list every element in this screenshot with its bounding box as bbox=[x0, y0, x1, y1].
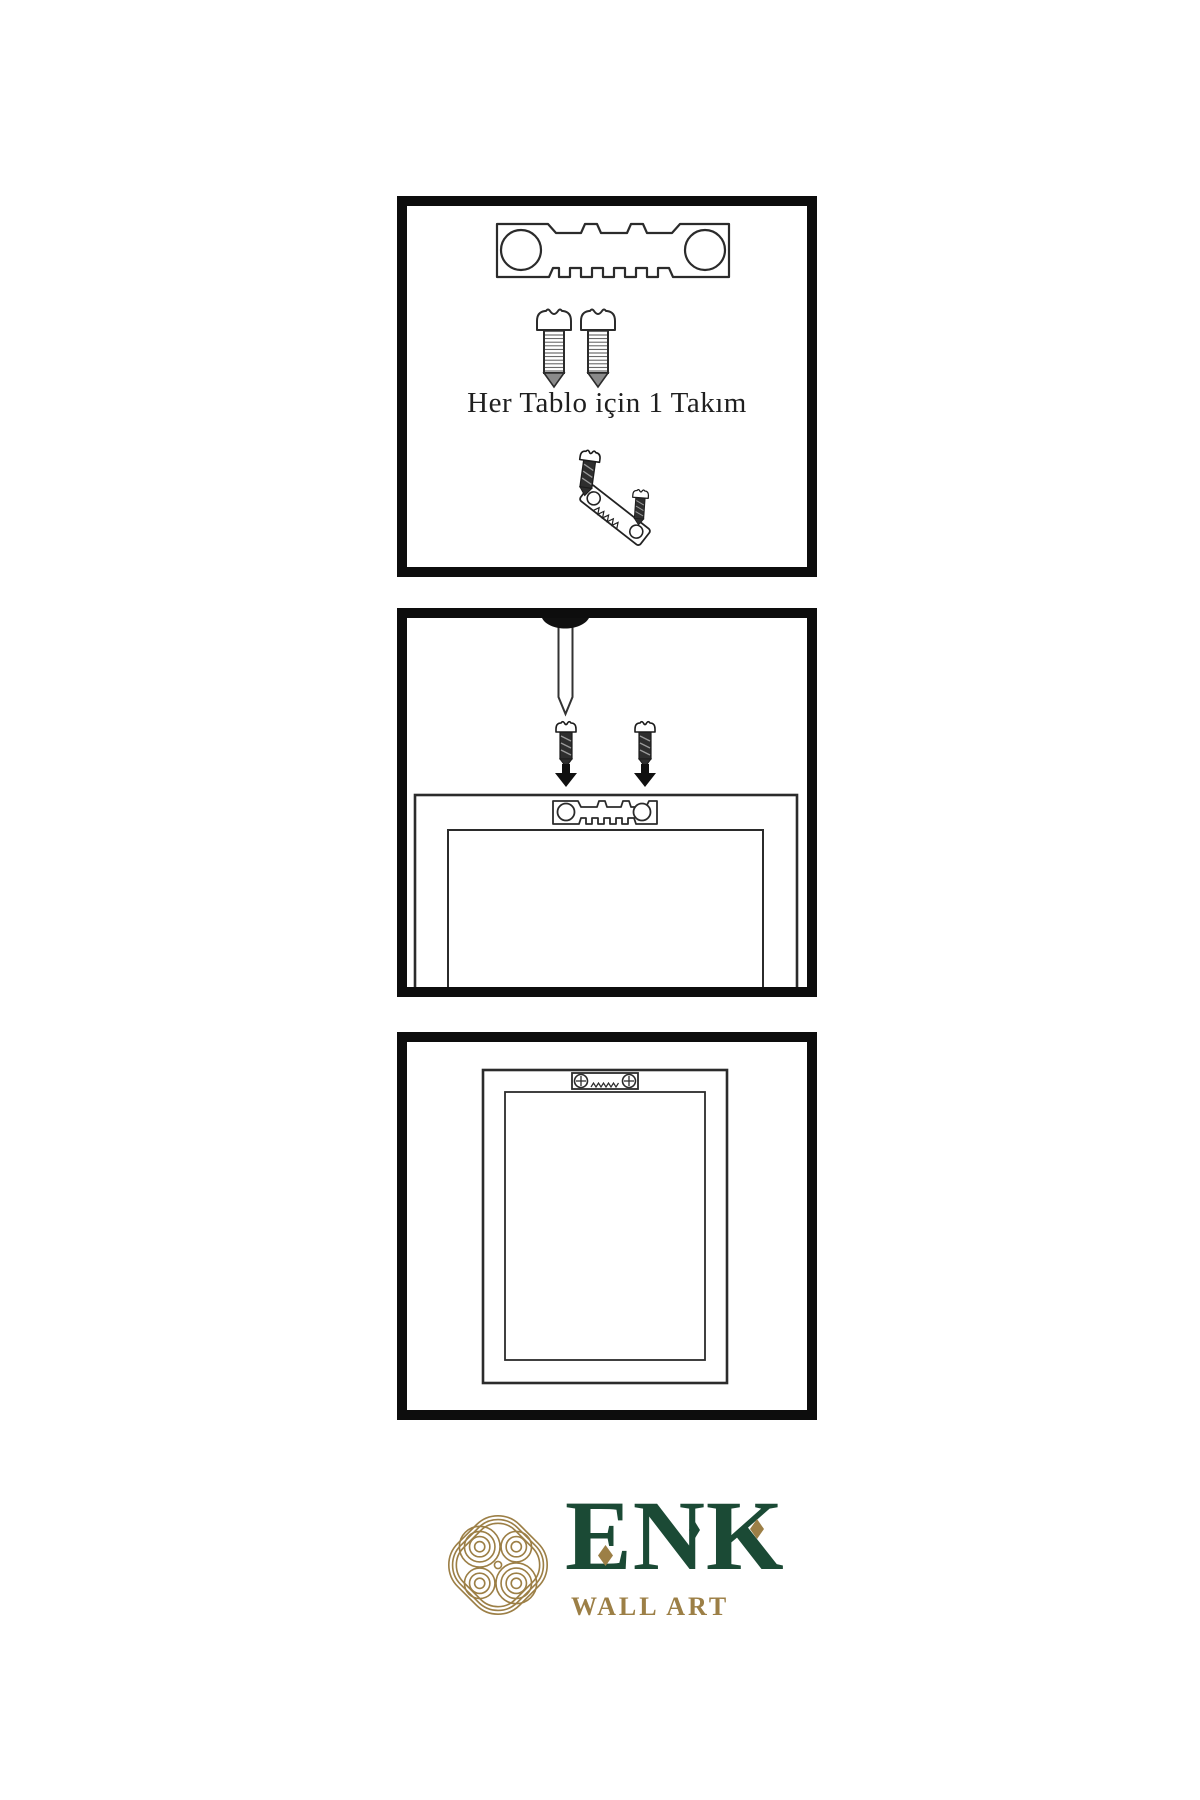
panel-hung-frame bbox=[397, 1032, 817, 1420]
mounted-hanger-icon bbox=[572, 1073, 638, 1089]
sawtooth-hanger-icon bbox=[553, 801, 657, 824]
sawtooth-hanger-icon bbox=[497, 224, 729, 277]
frame-back-view bbox=[415, 795, 797, 987]
screw-icon bbox=[581, 310, 615, 388]
brand-logo: ENK WALL ART bbox=[437, 1500, 857, 1640]
enk-knot-icon bbox=[437, 1504, 559, 1626]
brand-wordmark: ENK bbox=[565, 1486, 785, 1586]
brand-tagline: WALL ART bbox=[571, 1594, 729, 1620]
screw-icon bbox=[556, 722, 576, 767]
panel-wall-mounting bbox=[397, 608, 817, 997]
down-arrow-icon bbox=[555, 764, 577, 787]
wall-mounting-art bbox=[407, 618, 807, 987]
down-arrow-icon bbox=[634, 764, 656, 787]
wall-nail-icon bbox=[542, 618, 589, 714]
frame-front-view bbox=[483, 1070, 727, 1383]
mini-mounting-demo-icon bbox=[575, 449, 651, 546]
panel-hardware-kit: Her Tablo için 1 Takım bbox=[397, 196, 817, 577]
screw-icon bbox=[537, 310, 571, 388]
screw-icon bbox=[635, 722, 655, 767]
instruction-sheet: Her Tablo için 1 Takım bbox=[0, 0, 1200, 1800]
kit-caption: Her Tablo için 1 Takım bbox=[407, 387, 807, 420]
hung-frame-art bbox=[407, 1042, 807, 1410]
